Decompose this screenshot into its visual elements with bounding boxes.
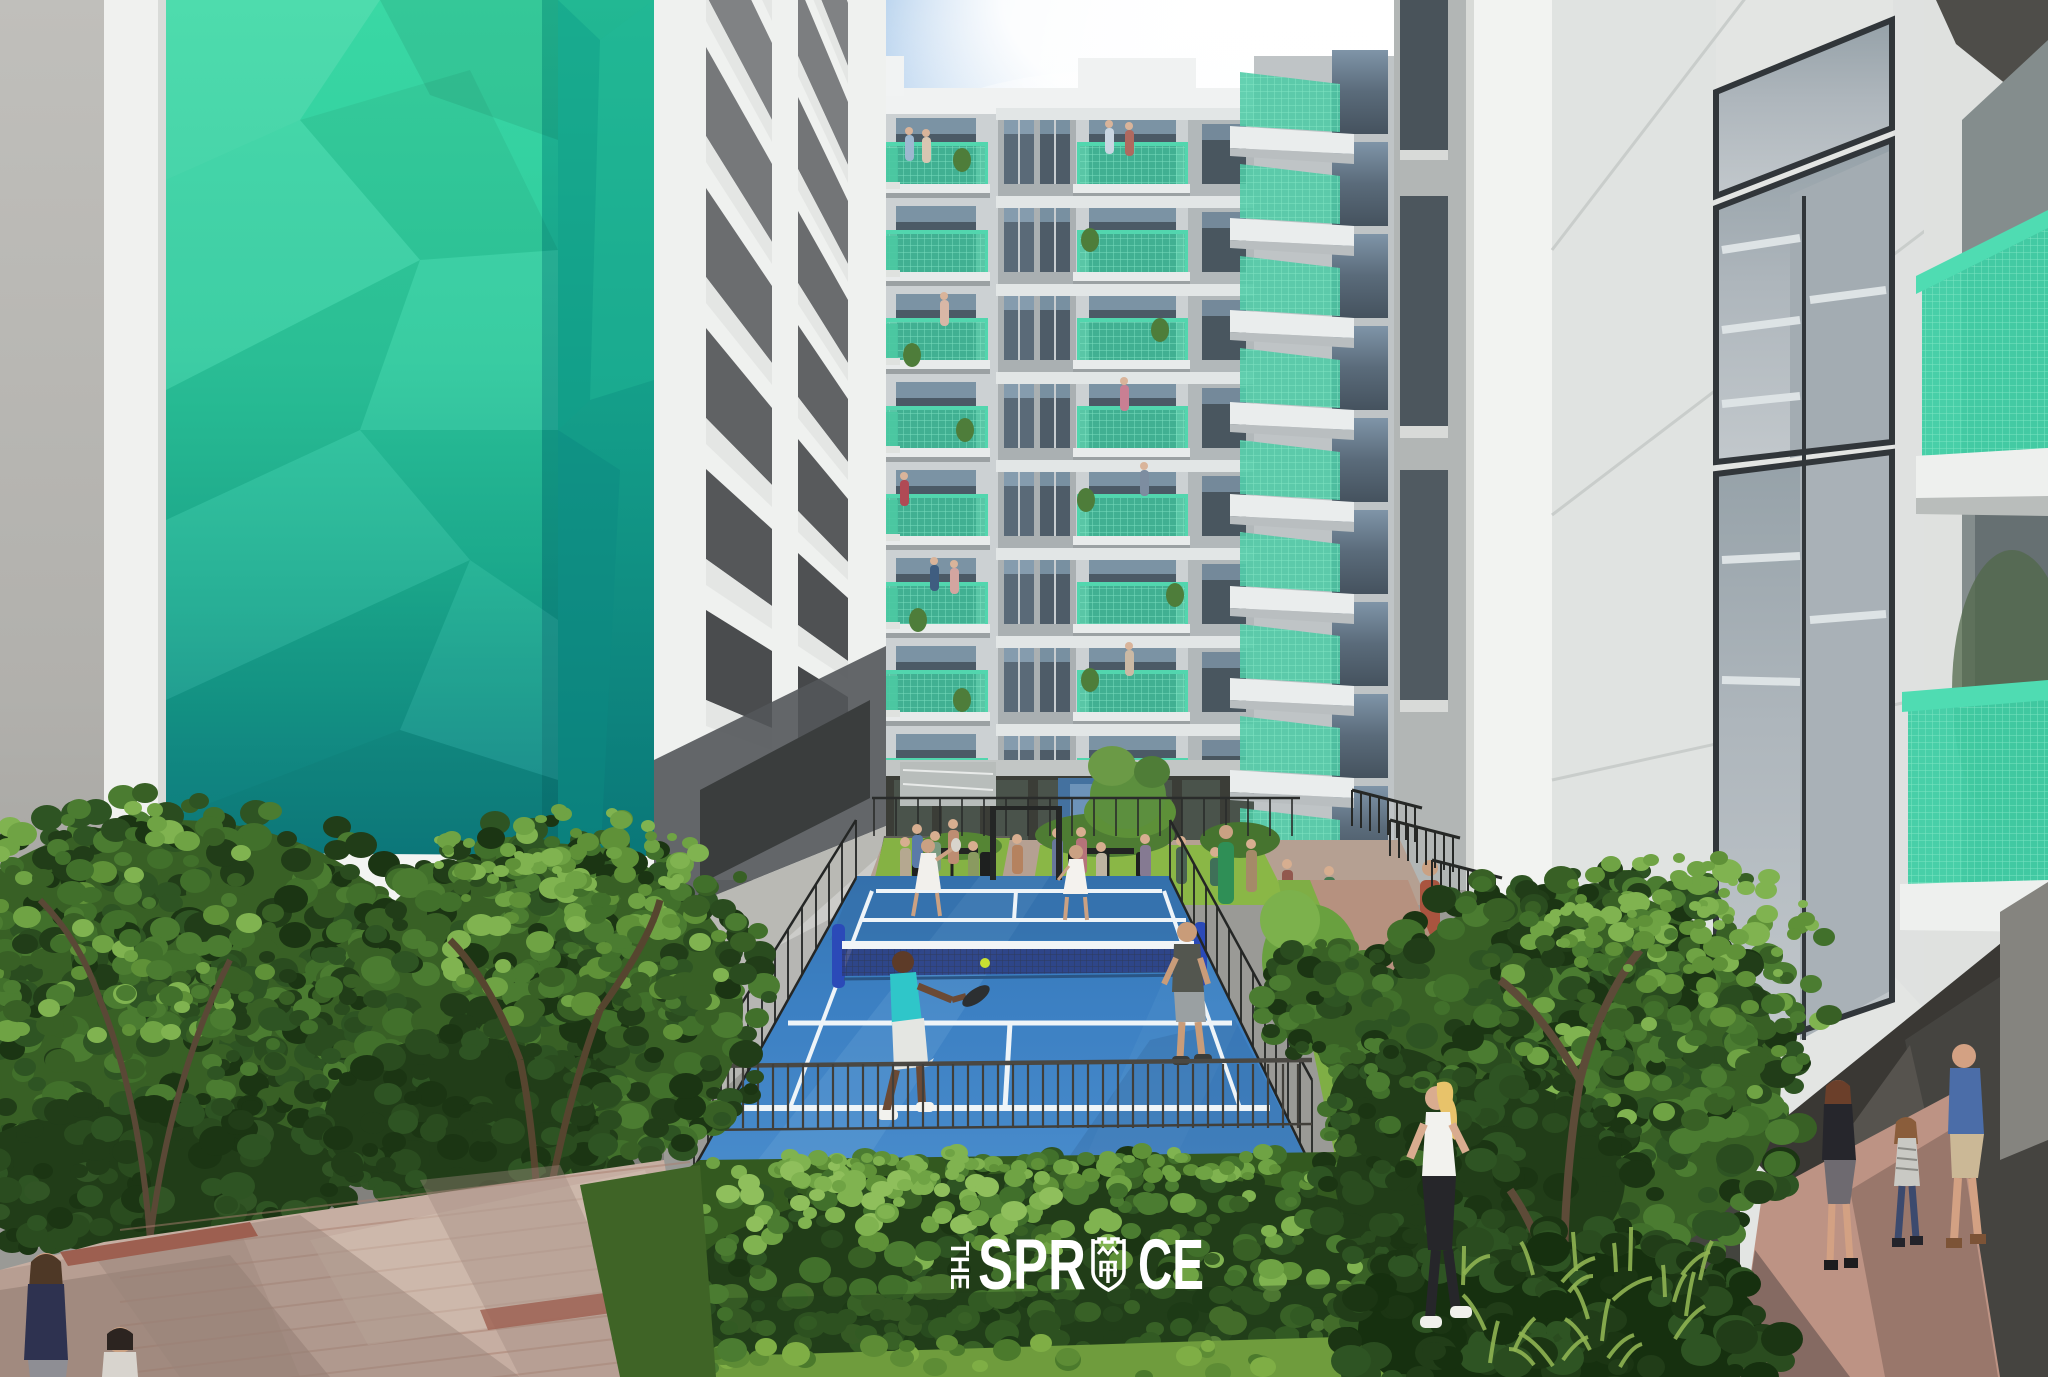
svg-text:SPR: SPR bbox=[978, 1226, 1086, 1305]
svg-text:CE: CE bbox=[1138, 1226, 1204, 1305]
svg-text:THE: THE bbox=[945, 1241, 975, 1290]
